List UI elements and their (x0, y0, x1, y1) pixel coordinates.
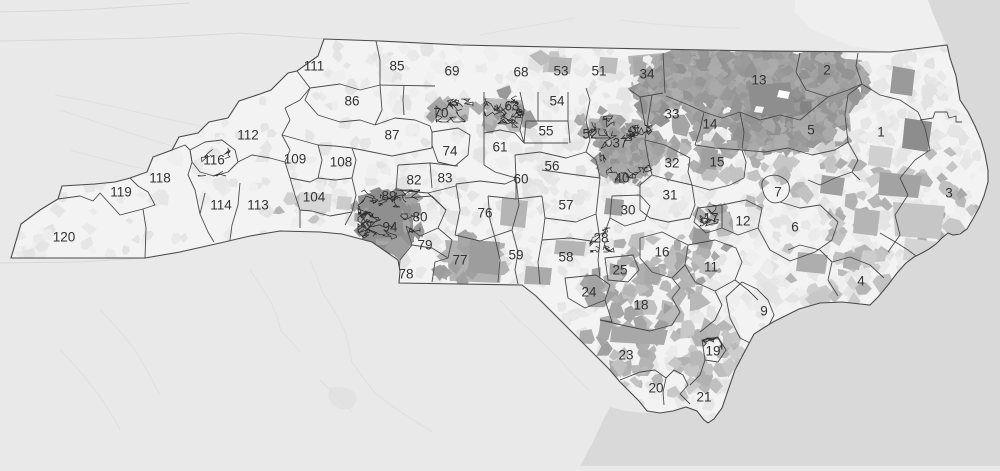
svg-text:112: 112 (237, 128, 259, 143)
svg-text:80: 80 (412, 210, 427, 225)
svg-text:34: 34 (639, 67, 655, 82)
svg-text:59: 59 (508, 248, 523, 263)
svg-text:12: 12 (735, 214, 750, 229)
svg-text:5: 5 (807, 123, 815, 138)
svg-text:60: 60 (513, 172, 528, 187)
svg-text:21: 21 (696, 390, 711, 405)
svg-text:82: 82 (406, 173, 421, 188)
svg-text:3: 3 (945, 186, 953, 201)
svg-text:31: 31 (662, 188, 677, 203)
svg-text:70: 70 (433, 106, 448, 121)
svg-text:116: 116 (203, 153, 225, 168)
svg-text:4: 4 (857, 274, 865, 289)
svg-text:54: 54 (549, 94, 565, 109)
svg-text:58: 58 (558, 250, 573, 265)
svg-text:69: 69 (444, 64, 459, 79)
svg-text:111: 111 (304, 59, 325, 74)
svg-text:32: 32 (664, 156, 679, 171)
svg-text:9: 9 (760, 304, 768, 319)
svg-text:30: 30 (620, 203, 635, 218)
svg-text:87: 87 (384, 128, 399, 143)
svg-text:20: 20 (648, 381, 663, 396)
svg-text:74: 74 (442, 144, 458, 159)
svg-text:55: 55 (538, 124, 553, 139)
svg-text:108: 108 (330, 155, 353, 170)
svg-text:25: 25 (612, 263, 627, 278)
svg-text:119: 119 (110, 185, 132, 200)
svg-text:17: 17 (703, 211, 718, 226)
svg-text:23: 23 (618, 348, 633, 363)
svg-text:86: 86 (344, 94, 359, 109)
svg-text:13: 13 (751, 73, 766, 88)
svg-text:109: 109 (284, 152, 307, 167)
svg-text:77: 77 (452, 253, 467, 268)
svg-text:57: 57 (558, 198, 573, 213)
svg-text:7: 7 (774, 185, 782, 200)
svg-text:16: 16 (654, 245, 669, 260)
svg-text:15: 15 (709, 155, 724, 170)
svg-text:51: 51 (591, 64, 606, 79)
svg-text:61: 61 (492, 140, 507, 155)
svg-text:40: 40 (614, 171, 629, 186)
svg-text:79: 79 (417, 238, 432, 253)
svg-text:63: 63 (504, 99, 519, 114)
svg-text:18: 18 (633, 298, 648, 313)
svg-text:1: 1 (877, 125, 885, 140)
svg-text:83: 83 (437, 171, 452, 186)
svg-text:24: 24 (581, 285, 597, 300)
svg-text:76: 76 (477, 206, 492, 221)
svg-text:85: 85 (389, 59, 404, 74)
svg-text:14: 14 (702, 117, 718, 132)
svg-text:33: 33 (664, 107, 679, 122)
svg-text:89: 89 (381, 189, 396, 204)
svg-text:68: 68 (513, 65, 528, 80)
svg-text:113: 113 (247, 198, 269, 213)
svg-text:53: 53 (553, 64, 568, 79)
svg-text:19: 19 (705, 344, 720, 359)
svg-text:118: 118 (149, 171, 171, 186)
svg-text:28: 28 (593, 231, 608, 246)
svg-text:6: 6 (791, 220, 799, 235)
svg-text:94: 94 (382, 220, 398, 235)
svg-text:120: 120 (53, 230, 76, 245)
svg-text:2: 2 (823, 63, 831, 78)
svg-text:104: 104 (303, 190, 326, 205)
svg-text:114: 114 (210, 198, 232, 213)
svg-text:78: 78 (398, 267, 413, 282)
svg-text:56: 56 (544, 159, 559, 174)
svg-text:37: 37 (612, 136, 627, 151)
svg-text:52: 52 (582, 127, 597, 142)
svg-text:11: 11 (704, 260, 718, 275)
